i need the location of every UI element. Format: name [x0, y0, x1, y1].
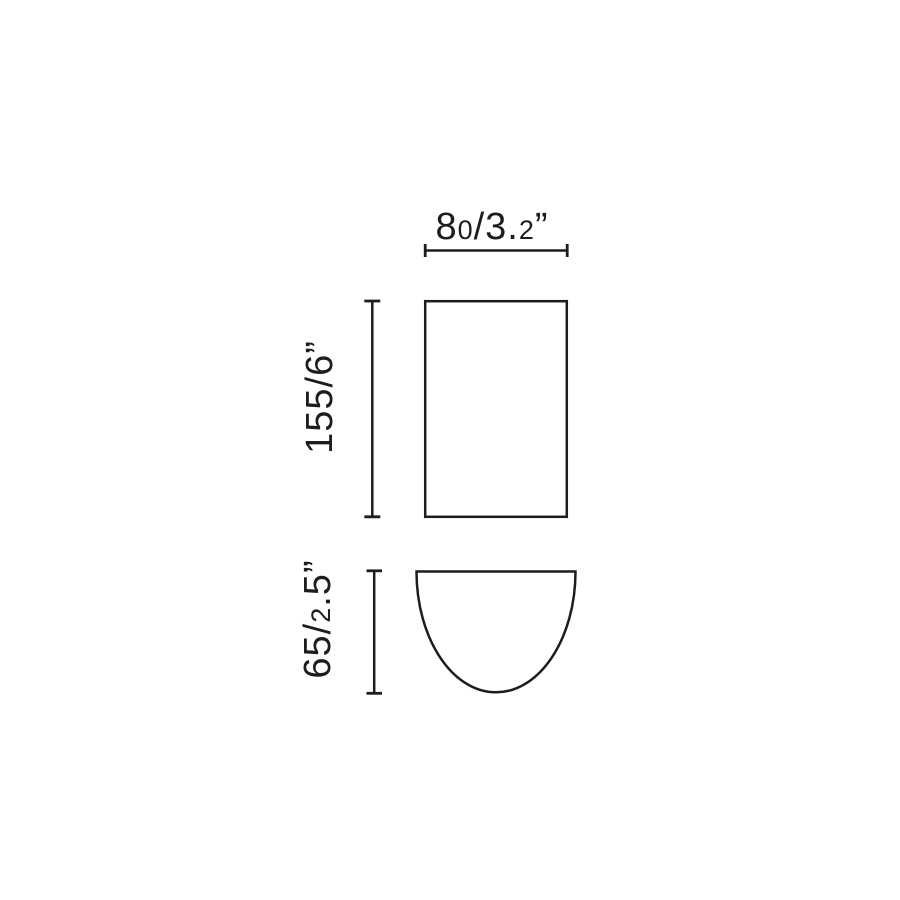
label-segment: .5 [297, 573, 339, 607]
label-segment: ” [299, 340, 341, 354]
label-segment: 155/6 [299, 354, 341, 454]
height-dimension-line [364, 300, 380, 518]
label-segment: 65/ [297, 623, 339, 679]
label-segment: 0 [458, 215, 474, 245]
label-segment: 2 [519, 215, 535, 245]
dimension-diagram-page: 80/3.2” 155/6” 65/2.5” [0, 0, 900, 900]
front-view-outline [425, 301, 567, 517]
depth-dimension-label: 65/2.5” [298, 499, 338, 739]
label-segment: 2 [306, 607, 336, 623]
width-dimension-label: 80/3.2” [392, 207, 592, 247]
label-segment: ” [297, 559, 339, 573]
height-dimension-label: 155/6” [300, 277, 340, 517]
depth-dimension-line [367, 570, 383, 694]
label-segment: ” [535, 206, 549, 248]
label-segment: 8 [435, 206, 457, 248]
diagram-linework [0, 0, 900, 900]
label-segment: /3. [474, 206, 519, 248]
top-view-outline [417, 572, 576, 693]
